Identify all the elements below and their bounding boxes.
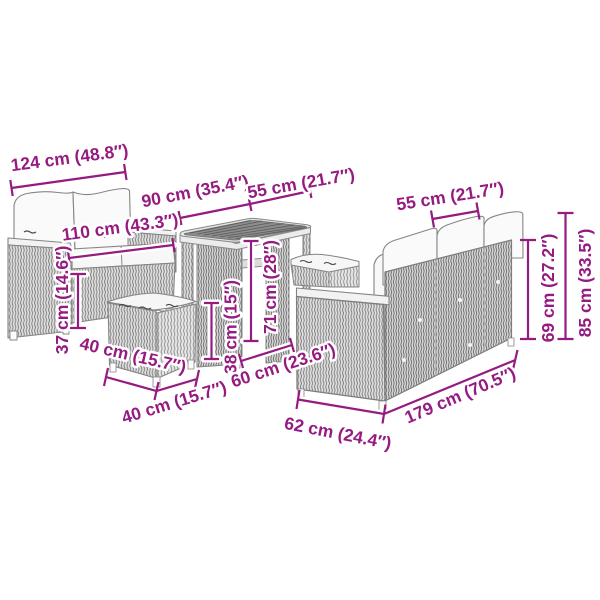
svg-text:71 cm (28″): 71 cm (28″) <box>260 240 280 334</box>
svg-text:85 cm (33.5″): 85 cm (33.5″) <box>575 229 595 338</box>
svg-text:69 cm (27.2″): 69 cm (27.2″) <box>538 234 558 343</box>
svg-text:37 cm (14.6″): 37 cm (14.6″) <box>52 246 72 355</box>
svg-text:38 cm (15″): 38 cm (15″) <box>221 280 241 374</box>
